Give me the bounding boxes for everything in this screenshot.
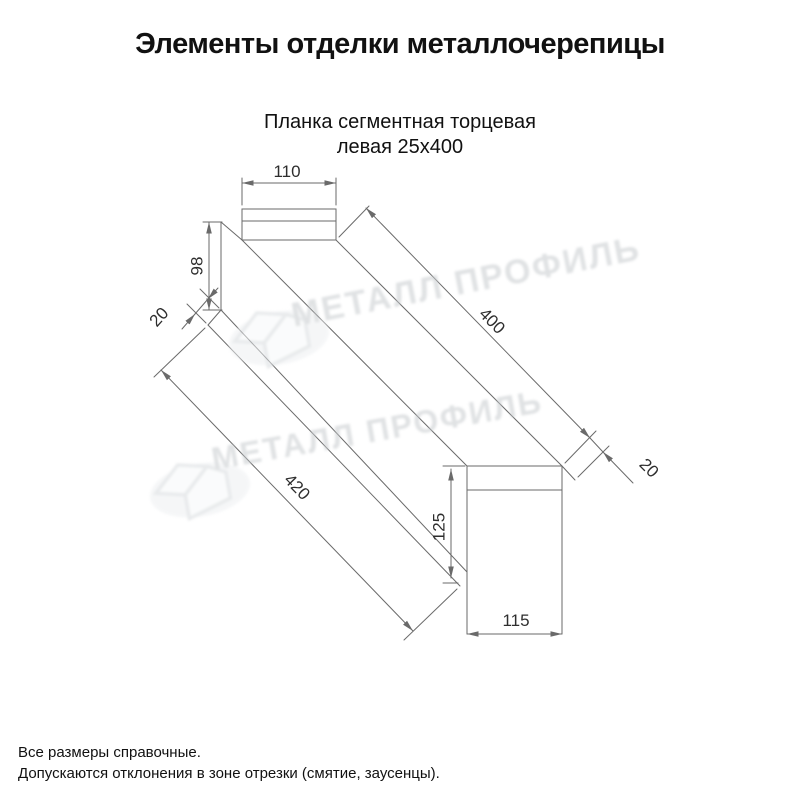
- bottom-end-tab: [467, 466, 562, 634]
- technical-drawing: 110 98 20 400: [0, 0, 800, 800]
- dim-label-end-hem: 20: [636, 455, 663, 482]
- watermark-lower: МЕТАЛЛ ПРОФИЛЬ: [145, 383, 545, 525]
- dimension-top-hem: 20: [146, 288, 219, 330]
- note-deviations: Допускаются отклонения в зоне отрезки (с…: [18, 763, 440, 784]
- top-end-tab: [242, 209, 336, 240]
- dimension-end-hem: 20: [578, 438, 662, 483]
- watermark-upper: МЕТАЛЛ ПРОФИЛЬ: [224, 230, 643, 373]
- dimension-end-plate-width: 115: [467, 611, 562, 634]
- dim-label-length-top: 400: [475, 304, 508, 337]
- dim-label-end-plate-width: 115: [502, 611, 529, 630]
- top-end-fold: [221, 222, 242, 240]
- dim-label-end-plate-height: 125: [430, 513, 449, 541]
- dimension-end-plate-height: 125: [430, 466, 466, 583]
- dim-label-top-width: 110: [273, 162, 300, 181]
- dimension-top-width: 110: [242, 162, 336, 205]
- dim-label-top-hem: 20: [146, 304, 173, 331]
- note-dimensions-reference: Все размеры справочные.: [18, 742, 440, 763]
- hem-fold-edge: [208, 310, 221, 325]
- footnotes: Все размеры справочные. Допускаются откл…: [18, 742, 440, 784]
- watermark-text: МЕТАЛЛ ПРОФИЛЬ: [209, 383, 546, 477]
- product-drawing-page: Элементы отделки металлочерепицы Планка …: [0, 0, 800, 800]
- dimension-side-height: 98: [188, 222, 223, 310]
- dim-label-side-height: 98: [188, 257, 207, 276]
- bottom-end-fold: [562, 466, 575, 480]
